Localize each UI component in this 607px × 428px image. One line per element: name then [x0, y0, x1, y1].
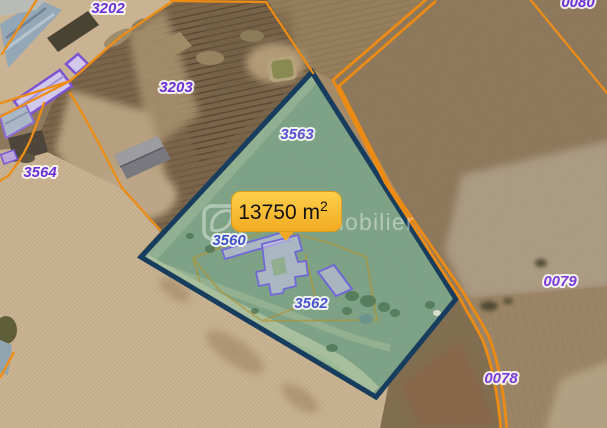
svg-text:0080: 0080	[561, 0, 595, 11]
svg-text:3563: 3563	[280, 126, 314, 143]
svg-text:3562: 3562	[294, 295, 328, 312]
svg-text:3203: 3203	[159, 79, 193, 96]
svg-text:3564: 3564	[23, 164, 57, 181]
svg-text:0078: 0078	[484, 370, 518, 387]
svg-text:3560: 3560	[212, 232, 246, 249]
svg-text:13750 m2: 13750 m2	[238, 198, 328, 224]
svg-text:0079: 0079	[543, 273, 577, 290]
svg-text:3202: 3202	[91, 0, 125, 17]
